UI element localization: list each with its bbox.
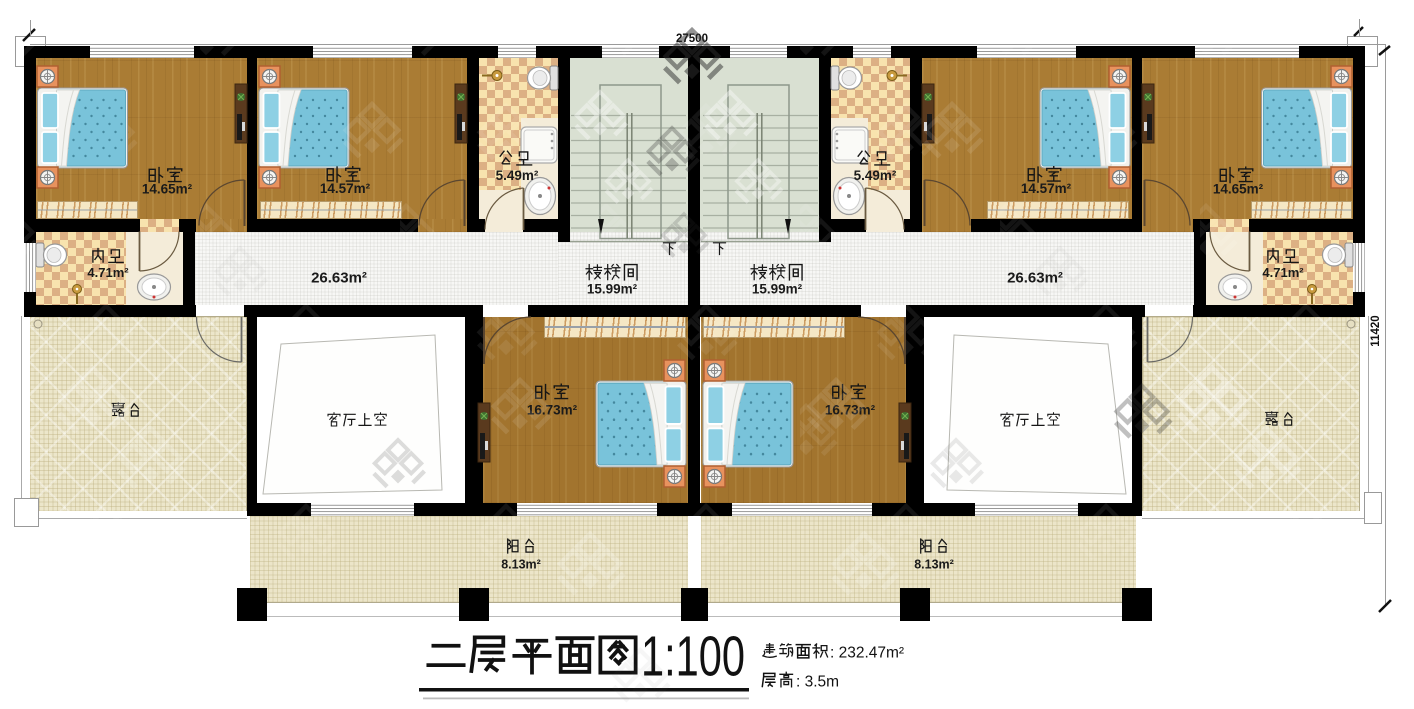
svg-text:8.13m²: 8.13m² [501, 558, 541, 572]
svg-text:15.99m²: 15.99m² [587, 282, 638, 297]
svg-text:15.99m²: 15.99m² [752, 282, 803, 297]
svg-text:: 232.47m²: : 232.47m² [830, 645, 904, 662]
svg-text:14.57m²: 14.57m² [320, 181, 371, 196]
svg-text:14.65m²: 14.65m² [142, 182, 193, 197]
svg-text:5.49m²: 5.49m² [854, 168, 897, 183]
svg-text:4.71m²: 4.71m² [87, 265, 129, 280]
svg-text:14.57m²: 14.57m² [1021, 181, 1072, 196]
svg-text:1:100: 1:100 [641, 625, 745, 689]
svg-text:: 3.5m: : 3.5m [796, 674, 839, 691]
svg-text:14.65m²: 14.65m² [1213, 182, 1264, 197]
svg-text:4.71m²: 4.71m² [1262, 265, 1304, 280]
svg-text:11420: 11420 [1370, 315, 1382, 346]
svg-text:5.49m²: 5.49m² [496, 168, 539, 183]
svg-text:8.13m²: 8.13m² [914, 558, 954, 572]
svg-text:26.63m²: 26.63m² [311, 270, 367, 287]
